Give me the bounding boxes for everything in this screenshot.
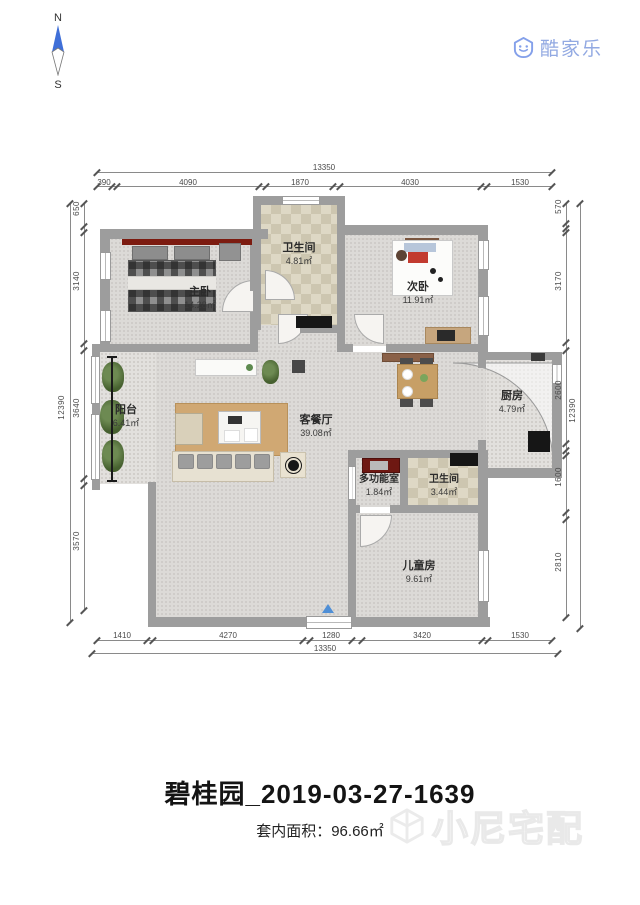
window — [478, 240, 489, 270]
teddy-bear — [396, 250, 407, 261]
entrance-door — [306, 616, 352, 629]
cube-watermark-icon — [388, 807, 426, 845]
multifunction-cabinet-inner — [370, 461, 388, 470]
flower-decor — [288, 460, 299, 471]
dim-label: 3170 — [554, 271, 563, 291]
dim-label: 1530 — [511, 178, 529, 187]
armchair — [175, 413, 203, 445]
pillow — [174, 246, 210, 260]
balcony-plant — [102, 362, 124, 392]
table-tray — [244, 428, 258, 442]
kujiale-shield-smiley-icon — [512, 36, 535, 59]
wall — [482, 468, 562, 478]
wall — [400, 450, 408, 513]
dim-label-total: 12390 — [57, 395, 66, 420]
table-tray — [224, 430, 240, 442]
dim-label: 1280 — [322, 631, 340, 640]
bath2-vanity — [450, 453, 478, 466]
dim-label: 650 — [72, 201, 81, 216]
dim-line — [84, 203, 85, 610]
dim-label: 4270 — [219, 631, 237, 640]
dining-chair — [400, 399, 413, 407]
dim-line — [97, 640, 552, 641]
window — [91, 356, 100, 404]
wall — [92, 344, 258, 352]
dim-label: 3570 — [72, 531, 81, 551]
pillow — [404, 243, 436, 252]
room-label-balcony: 阳台 6.41㎡ — [113, 404, 140, 429]
dim-label: 3640 — [72, 398, 81, 418]
door-multifunction — [348, 466, 356, 500]
sofa-cushion — [197, 454, 213, 469]
plate — [402, 386, 413, 397]
brand-name: 酷家乐 — [540, 34, 603, 61]
table-decor — [228, 416, 242, 424]
brand-logo: 酷家乐 — [512, 34, 603, 61]
dim-line — [566, 203, 567, 617]
room-label-living: 客餐厅 39.08㎡ — [300, 414, 333, 439]
room-label-bath2: 卫生间 3.44㎡ — [429, 474, 459, 498]
dim-label-total: 12390 — [568, 398, 577, 423]
balcony-railing-cap — [107, 356, 117, 358]
window — [91, 414, 100, 480]
dim-line — [92, 653, 558, 654]
window — [478, 296, 489, 336]
pillow — [408, 252, 428, 263]
dining-chair — [420, 399, 433, 407]
compass-north-label: N — [46, 12, 70, 24]
table-plant — [420, 374, 428, 382]
floorplan-page: N S 酷家乐 — [0, 0, 640, 905]
wall — [148, 617, 310, 627]
nightstand — [219, 243, 241, 261]
dim-label: 4030 — [401, 178, 419, 187]
watermark-text: 小尼宅配 — [432, 800, 584, 852]
pillow — [132, 246, 168, 260]
speaker-box — [292, 360, 305, 373]
balcony-railing-cap — [107, 480, 117, 482]
room-label-master: 主卧 14.28㎡ — [184, 286, 216, 311]
dim-label: 2600 — [554, 380, 563, 400]
dim-label: 3140 — [72, 271, 81, 291]
window — [100, 310, 111, 342]
dim-line — [580, 203, 581, 628]
room-label-bedroom2: 次卧 11.91㎡ — [403, 281, 434, 306]
room-label-multifunction: 多功能室 1.84㎡ — [359, 474, 399, 498]
dim-label: 1870 — [291, 178, 309, 187]
window — [100, 252, 111, 280]
wall — [348, 513, 356, 627]
wall — [253, 196, 261, 330]
dim-label: 2810 — [554, 552, 563, 572]
console-plant — [246, 364, 253, 371]
balcony-plant — [102, 440, 124, 472]
dim-label: 1600 — [554, 467, 563, 487]
wall — [348, 617, 490, 627]
dim-label: 4090 — [179, 178, 197, 187]
sofa-cushion — [178, 454, 194, 469]
dim-label: 1530 — [511, 631, 529, 640]
computer-monitor — [437, 330, 455, 341]
dim-label: 3420 — [413, 631, 431, 640]
plate — [402, 369, 413, 380]
window — [478, 550, 489, 602]
dim-label: 1410 — [113, 631, 131, 640]
sofa-cushion — [254, 454, 270, 469]
bath1-vanity — [296, 316, 332, 328]
kitchen-counter — [531, 353, 545, 361]
compass-needle-icon — [50, 24, 66, 76]
sofa-cushion — [216, 454, 232, 469]
wall — [337, 196, 345, 352]
wall — [478, 352, 486, 368]
compass-south-label: S — [46, 79, 70, 91]
room-label-bath1: 卫生间 4.81㎡ — [283, 242, 316, 267]
wall — [386, 344, 488, 352]
dim-label-total: 13350 — [313, 163, 335, 172]
entrance-marker-icon — [322, 604, 334, 613]
compass: N S — [46, 12, 70, 91]
wall — [100, 229, 268, 239]
wall — [148, 482, 156, 627]
dim-line — [97, 172, 552, 173]
wall — [337, 225, 488, 235]
window — [282, 196, 320, 205]
dim-label-total: 13350 — [314, 644, 336, 653]
room-label-kidsroom: 儿童房 9.61㎡ — [403, 560, 436, 585]
blanket-pattern-dot — [438, 277, 443, 282]
sofa-cushion — [235, 454, 251, 469]
room-label-kitchen: 厨房 4.79㎡ — [499, 390, 526, 415]
wall — [482, 352, 562, 360]
potted-plant — [262, 360, 279, 384]
watermark: 小尼宅配 — [388, 800, 584, 852]
kitchen-appliance — [528, 431, 550, 452]
dim-line — [70, 203, 71, 623]
blanket-pattern-dot — [430, 268, 436, 274]
